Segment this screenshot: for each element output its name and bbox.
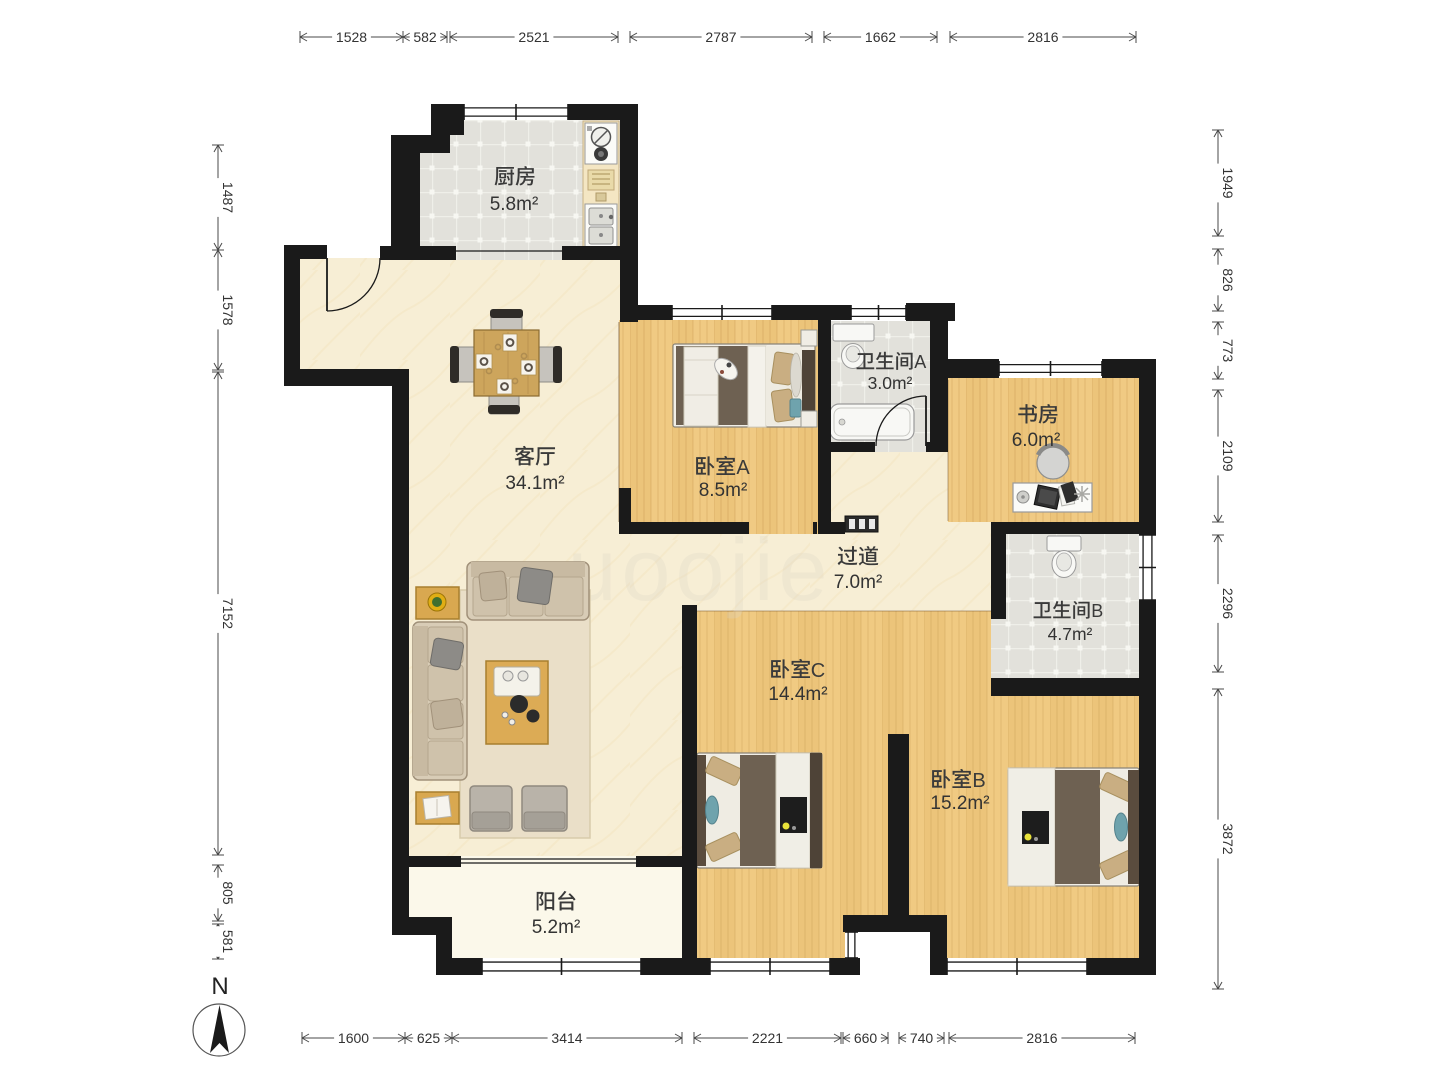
svg-text:5.2m²: 5.2m² [532, 917, 581, 938]
svg-text:2521: 2521 [518, 29, 549, 45]
svg-text:2787: 2787 [705, 29, 736, 45]
svg-text:2296: 2296 [1220, 588, 1236, 619]
svg-text:A: A [914, 352, 926, 372]
svg-text:581: 581 [220, 930, 236, 954]
svg-text:3872: 3872 [1220, 823, 1236, 854]
svg-text:A: A [736, 457, 750, 479]
svg-text:4.7m²: 4.7m² [1048, 624, 1093, 644]
svg-text:805: 805 [220, 881, 236, 905]
svg-text:3.0m²: 3.0m² [868, 373, 913, 393]
svg-text:8.5m²: 8.5m² [699, 480, 748, 501]
svg-text:773: 773 [1220, 339, 1236, 363]
svg-text:3414: 3414 [551, 1030, 582, 1046]
svg-text:2816: 2816 [1027, 29, 1058, 45]
svg-text:2816: 2816 [1026, 1030, 1057, 1046]
svg-text:740: 740 [910, 1030, 934, 1046]
svg-text:2109: 2109 [1220, 440, 1236, 471]
svg-text:14.4m²: 14.4m² [768, 684, 827, 705]
svg-text:625: 625 [417, 1030, 441, 1046]
svg-text:1662: 1662 [865, 29, 896, 45]
svg-text:uoojie: uoojie [568, 520, 833, 619]
svg-text:N: N [211, 973, 228, 1000]
svg-text:1528: 1528 [336, 29, 367, 45]
svg-text:1487: 1487 [220, 182, 236, 213]
svg-text:34.1m²: 34.1m² [505, 473, 564, 494]
svg-text:1578: 1578 [220, 294, 236, 325]
svg-text:2221: 2221 [752, 1030, 783, 1046]
svg-text:6.0m²: 6.0m² [1012, 430, 1061, 451]
svg-text:7.0m²: 7.0m² [834, 572, 883, 593]
svg-text:582: 582 [413, 29, 437, 45]
svg-text:15.2m²: 15.2m² [930, 793, 989, 814]
svg-text:7152: 7152 [220, 598, 236, 629]
svg-text:C: C [811, 660, 825, 682]
svg-text:1949: 1949 [1220, 167, 1236, 198]
svg-text:B: B [1091, 601, 1103, 621]
svg-text:660: 660 [854, 1030, 878, 1046]
svg-text:826: 826 [1220, 268, 1236, 292]
svg-text:5.8m²: 5.8m² [490, 194, 539, 215]
svg-text:1600: 1600 [338, 1030, 369, 1046]
svg-text:B: B [972, 770, 985, 792]
